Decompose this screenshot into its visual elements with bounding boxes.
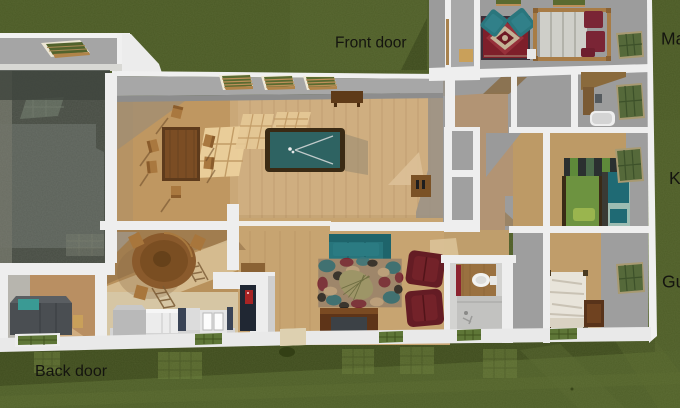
svg-text:Back door: Back door [35, 363, 108, 380]
svg-text:K: K [669, 168, 680, 188]
svg-text:Ma: Ma [661, 29, 680, 49]
svg-text:Gu: Gu [662, 272, 680, 292]
svg-text:Front door: Front door [335, 35, 407, 52]
